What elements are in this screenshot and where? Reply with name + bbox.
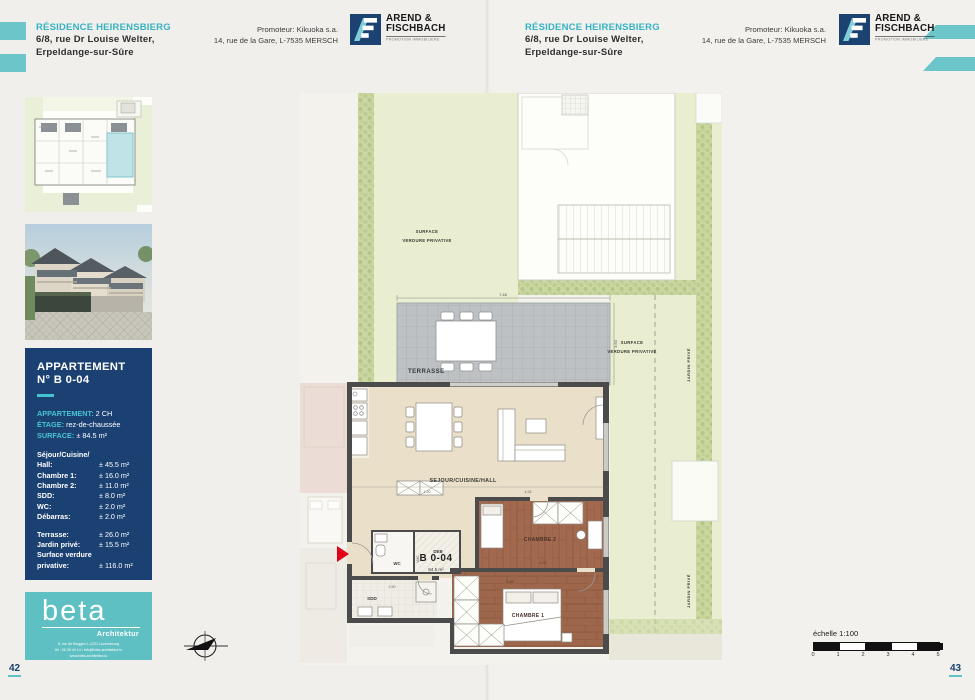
label-surface-left-1: SURFACE [416, 229, 439, 234]
info-title-line2: N° B 0-04 [37, 374, 89, 386]
label-chambre1: CHAMBRE 1 [512, 613, 544, 619]
chambre2-wardrobe [533, 502, 583, 524]
promoter-line-2: 14, rue de la Gare, L-7535 MERSCH [702, 36, 826, 45]
spec-apartment: APPARTEMENT: 2 CH [37, 408, 141, 419]
outdoor-row: Terrasse:± 26.0 m² [37, 530, 141, 540]
label-terrasse: TERRASSE [408, 369, 445, 375]
scale-bar: échelle 1:100 0 1 2 3 4 5 [813, 629, 953, 660]
common-area [518, 93, 675, 280]
accent-bar-2 [0, 54, 26, 72]
tv-bench [596, 397, 604, 439]
garden-structure [672, 461, 718, 521]
dim-sejour: 4.34 [525, 490, 532, 494]
staircase [558, 205, 670, 273]
beta-address: 5, rue de Beggen L-1221 Luxembourg tél :… [25, 642, 152, 660]
af-logo-mark [350, 14, 381, 50]
scale-label: échelle 1:100 [813, 629, 953, 638]
residence-title: RÉSIDENCE HEIRENSBIERG [525, 22, 660, 34]
af-name-2: FISCHBACH [386, 24, 482, 34]
residence-address-1: 6/8, rue Dr Louise Welter, [525, 34, 644, 45]
scale-ruler [813, 642, 940, 651]
brochure-spread: RÉSIDENCE HEIRENSBIERG 6/8, rue Dr Louis… [0, 0, 975, 700]
label-unit-id: B 0-04 [419, 553, 452, 564]
room-row: SDD:± 8.0 m² [37, 491, 141, 501]
room-row: WC:± 2.0 m² [37, 502, 141, 512]
residence-header-left: RÉSIDENCE HEIRENSBIERG 6/8, rue Dr Louis… [36, 22, 171, 59]
af-tagline: PROMOTION IMMOBILIERE [875, 36, 935, 41]
info-title-line1: APPARTEMENT [37, 361, 125, 373]
residence-title: RÉSIDENCE HEIRENSBIERG [36, 22, 171, 34]
room-row: Séjour/Cuisine/ [37, 450, 141, 460]
beta-rule [42, 627, 140, 628]
north-arrow-icon [184, 629, 228, 668]
label-surface-left-2: VERDURE PRIVATIVE [402, 238, 451, 243]
label-wc: WC [393, 561, 401, 566]
key-plan-thumbnail [25, 97, 152, 212]
outdoor-row: privative:± 116.0 m² [37, 561, 141, 571]
neighbour-below [349, 625, 435, 647]
label-unit-area: 84.5 m² [428, 567, 444, 572]
dim-terrace-width: 7.48 [499, 292, 508, 297]
residence-address-1: 6/8, rue Dr Louise Welter, [36, 34, 155, 45]
label-surface-right-1: SURFACE [621, 340, 644, 345]
af-logo-mark [839, 14, 870, 50]
promoter-block-left: Promoteur: Kikuoka s.a. 14, rue de la Ga… [186, 24, 338, 47]
dim-terrace-depth: 3.50 [613, 339, 618, 348]
dim-sdd: 2.90 [389, 585, 396, 589]
room-row: Chambre 2:± 11.0 m² [37, 481, 141, 491]
neighbour-apartment [300, 383, 347, 663]
kitchen-units [350, 389, 367, 455]
label-chambre2: CHAMBRE 2 [524, 537, 556, 543]
floor-plan: SURFACE VERDURE PRIVATIVE SURFACE VERDUR… [300, 93, 722, 670]
af-name-2: FISCHBACH [875, 24, 971, 34]
room-row: Débarras:± 2.0 m² [37, 512, 141, 522]
af-logo-text: AREND & FISCHBACH PROMOTION IMMOBILIERE [386, 14, 482, 44]
label-jardin-prive-2: JARDIN PRIVÉ [686, 574, 691, 608]
dim-chambre2: 4.32 [540, 561, 547, 565]
shaft [562, 95, 588, 115]
label-surface-right-2: VERDURE PRIVATIVE [607, 349, 656, 354]
residence-address-2: Erpeldange-sur-Sûre [36, 47, 134, 58]
arend-fischbach-logo-left: AREND & FISCHBACH PROMOTION IMMOBILIERE [350, 14, 482, 50]
scale-ticks: 0 1 2 3 4 5 [813, 652, 953, 660]
dim-hall: 1.20 [424, 490, 431, 494]
af-tagline: PROMOTION IMMOBILIERE [386, 36, 446, 41]
info-specs: APPARTEMENT: 2 CH ÉTAGE: rez-de-chaussée… [37, 408, 141, 441]
accent-bar-1 [0, 22, 26, 40]
outdoor-row: Surface verdure [37, 550, 141, 560]
beta-subtitle: Architektur [25, 629, 139, 638]
label-jardin-prive-1: JARDIN PRIVÉ [686, 348, 691, 382]
label-sdd: SDD [367, 596, 377, 601]
dim-chambre1: 3.45 [507, 580, 514, 584]
info-title-rule [37, 394, 54, 397]
residence-header-right: RÉSIDENCE HEIRENSBIERG 6/8, rue Dr Louis… [525, 22, 660, 59]
info-title: APPARTEMENT N° B 0-04 [37, 361, 141, 388]
outdoor-row: Jardin privé:± 15.5 m² [37, 540, 141, 550]
page-number-right: 43 [949, 663, 962, 677]
spec-floor: ÉTAGE: rez-de-chaussée [37, 419, 141, 430]
residence-address-2: Erpeldange-sur-Sûre [525, 47, 623, 58]
building-photo-thumbnail [25, 224, 152, 340]
beta-architektur-logo: beta Architektur 5, rue de Beggen L-1221… [25, 592, 152, 660]
label-sejour: SEJOUR/CUISINE/HALL [429, 478, 497, 484]
promoter-line-2: 14, rue de la Gare, L-7535 MERSCH [214, 36, 338, 45]
room-row: Chambre 1:± 16.0 m² [37, 471, 141, 481]
af-logo-text: AREND & FISCHBACH PROMOTION IMMOBILIERE [875, 14, 971, 44]
beta-name: beta [25, 592, 152, 626]
apartment-info-box: APPARTEMENT N° B 0-04 APPARTEMENT: 2 CH … [25, 348, 152, 580]
promoter-line-1: Promoteur: Kikuoka s.a. [257, 25, 338, 34]
info-room-list: Séjour/Cuisine/ Hall:± 45.5 m² Chambre 1… [37, 450, 141, 571]
room-row: Hall:± 45.5 m² [37, 460, 141, 470]
promoter-block-right: Promoteur: Kikuoka s.a. 14, rue de la Ga… [674, 24, 826, 47]
promoter-line-1: Promoteur: Kikuoka s.a. [745, 25, 826, 34]
spec-surface: SURFACE: ± 84.5 m² [37, 430, 141, 441]
arend-fischbach-logo-right: AREND & FISCHBACH PROMOTION IMMOBILIERE [839, 14, 971, 50]
page-number-left: 42 [8, 663, 21, 677]
